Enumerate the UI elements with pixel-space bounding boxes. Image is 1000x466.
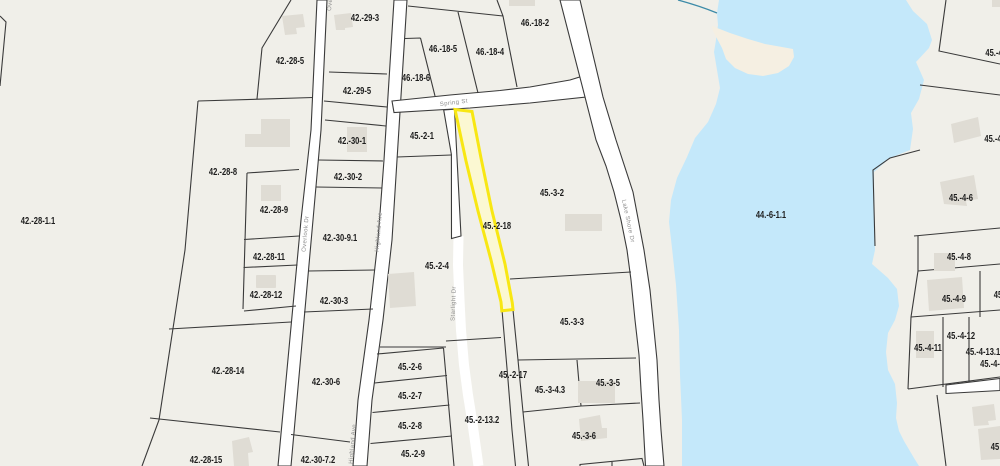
svg-text:42.-28-9: 42.-28-9 [260, 204, 288, 216]
svg-text:45.-2-13.2: 45.-2-13.2 [465, 414, 500, 426]
svg-text:45: 45 [994, 289, 1000, 301]
svg-text:45.-4-: 45.-4- [980, 358, 1000, 370]
svg-text:45.-4-9: 45.-4-9 [942, 293, 966, 305]
svg-text:42.-28-15: 42.-28-15 [190, 454, 223, 466]
svg-text:45.-4: 45.-4 [984, 133, 1000, 145]
svg-text:42.-30-3: 42.-30-3 [320, 295, 348, 307]
svg-text:45.-2-4: 45.-2-4 [425, 260, 449, 272]
svg-text:45.-2-9: 45.-2-9 [401, 448, 425, 460]
svg-text:45.-4-6: 45.-4-6 [949, 192, 973, 204]
svg-text:42.-30-1: 42.-30-1 [338, 135, 366, 147]
svg-text:42.-30-7.2: 42.-30-7.2 [301, 454, 336, 466]
svg-text:45.-3-2: 45.-3-2 [540, 187, 564, 199]
svg-text:45.-2-8: 45.-2-8 [398, 420, 422, 432]
svg-text:46.-18-5: 46.-18-5 [429, 43, 457, 55]
svg-text:Starlight Dr: Starlight Dr [451, 286, 458, 321]
svg-text:45.-3-6: 45.-3-6 [572, 430, 596, 442]
svg-text:42.-28-5: 42.-28-5 [276, 55, 304, 67]
svg-text:45: 45 [991, 441, 1000, 453]
svg-text:46.-18-4: 46.-18-4 [476, 46, 504, 58]
svg-text:45.-3-3: 45.-3-3 [560, 316, 584, 328]
svg-text:45.-2-17: 45.-2-17 [499, 369, 527, 381]
svg-text:42.-29-5: 42.-29-5 [343, 85, 371, 97]
svg-text:42.-28-14: 42.-28-14 [212, 365, 245, 377]
svg-text:45.-4-8: 45.-4-8 [947, 251, 971, 263]
svg-text:45.-4-12: 45.-4-12 [947, 330, 975, 342]
svg-text:42.-30-6: 42.-30-6 [312, 376, 340, 388]
svg-text:42.-28-1.1: 42.-28-1.1 [21, 215, 56, 227]
svg-text:45.-3-4.3: 45.-3-4.3 [535, 384, 565, 396]
svg-text:44.-6-1.1: 44.-6-1.1 [756, 209, 786, 221]
svg-text:42.-28-8: 42.-28-8 [209, 166, 237, 178]
svg-text:46.-18-2: 46.-18-2 [521, 17, 549, 29]
svg-text:45.-2-18: 45.-2-18 [483, 220, 511, 232]
svg-text:42.-28-11: 42.-28-11 [253, 251, 285, 263]
svg-text:45.-3-5: 45.-3-5 [596, 377, 620, 389]
svg-text:45.-2-6: 45.-2-6 [398, 361, 422, 373]
svg-text:42.-28-12: 42.-28-12 [250, 289, 283, 301]
svg-text:42.-29-3: 42.-29-3 [351, 12, 379, 24]
svg-text:45.-2-7: 45.-2-7 [398, 390, 422, 402]
svg-text:45.-2-1: 45.-2-1 [410, 130, 434, 142]
svg-text:42.-30-9.1: 42.-30-9.1 [323, 232, 358, 244]
svg-text:42.-30-2: 42.-30-2 [334, 171, 362, 183]
svg-text:45.-4: 45.-4 [985, 47, 1000, 59]
svg-text:46.-18-6: 46.-18-6 [402, 72, 430, 84]
svg-text:45.-4-13.1: 45.-4-13.1 [966, 346, 1000, 358]
svg-text:45.-4-11: 45.-4-11 [914, 342, 942, 354]
